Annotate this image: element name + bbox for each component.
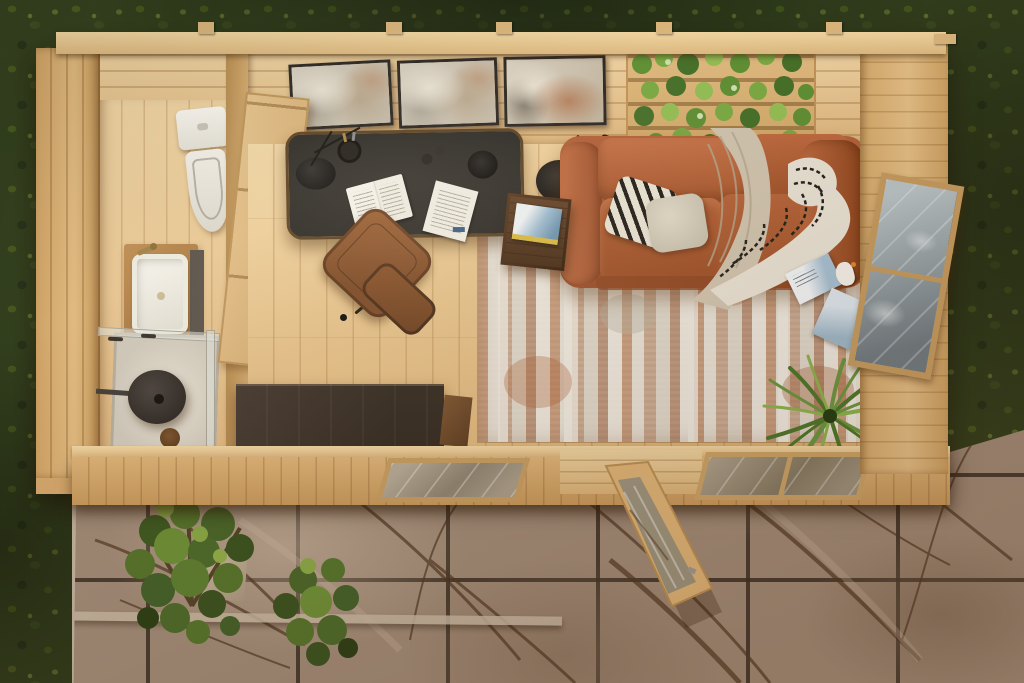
shower-head-center [154,394,164,404]
chair-caster [340,314,347,321]
patio-shrub-small [248,540,378,675]
shower-glass-panel-side [206,330,215,462]
left-wall [36,48,100,478]
faucet-base [150,243,157,250]
framed-artwork-3 [503,55,606,127]
sideboard [236,384,444,454]
bird-ornament-beak [851,262,856,267]
artwork-canvas [400,60,496,125]
magazine-text [792,266,819,287]
rafter-stub [496,22,512,34]
cabin-aerial-scene [0,0,1024,683]
rafter-stub [826,22,842,34]
toilet-seat [192,157,226,222]
rafter-stub [198,22,214,34]
office-chair [316,216,446,334]
artwork-canvas [506,58,603,124]
window-mullion [870,266,942,283]
sideboard-end-panel [439,395,472,448]
window-mullion [778,457,792,495]
bottom-window-left [376,458,531,502]
bw-throw-arm-piece [788,158,837,207]
desk-clamp [453,227,465,232]
rafter-stub [386,22,402,34]
framed-artwork-2 [397,57,499,128]
sink-drain [157,292,165,300]
shower-door-handle [141,334,156,339]
open-patio-door [560,440,770,650]
plant-center [823,409,837,423]
roof-top-plate [56,32,946,54]
shrub-foliage [125,499,254,644]
shrub-foliage [273,558,359,666]
toilet-flush-button [197,123,209,131]
shower-floor-drain [160,428,180,448]
rafter-stub-corner [934,34,956,44]
rafter-stub [656,22,672,34]
shower-door-handle [108,337,123,342]
small-bottle [435,146,444,155]
vanity-cabinet [190,250,204,344]
blue-book [512,203,563,245]
